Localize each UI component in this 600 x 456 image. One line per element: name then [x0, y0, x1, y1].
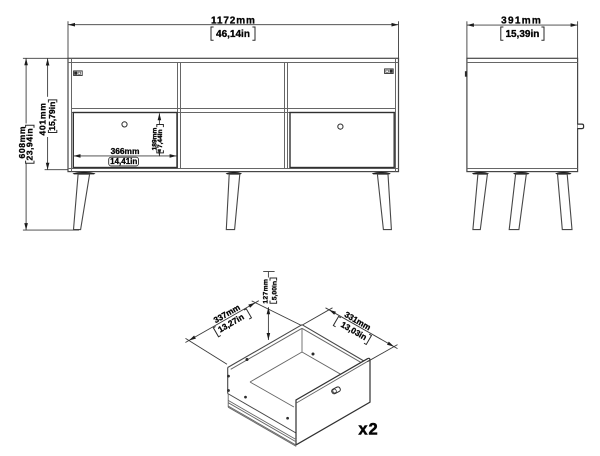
svg-text:14,41in: 14,41in [110, 157, 137, 166]
svg-text:5,00in: 5,00in [272, 281, 279, 300]
svg-text:7,44in: 7,44in [157, 129, 164, 148]
svg-text:46,14in: 46,14in [216, 29, 250, 40]
svg-text:401mm: 401mm [38, 102, 48, 135]
svg-text:23,94in: 23,94in [24, 128, 34, 161]
svg-text:1172mm: 1172mm [211, 15, 256, 26]
svg-text:127mm: 127mm [262, 279, 269, 304]
svg-text:366mm: 366mm [111, 146, 140, 156]
svg-text:15,79in: 15,79in [47, 102, 57, 131]
svg-text:15,39in: 15,39in [505, 29, 539, 40]
svg-text:391mm: 391mm [501, 15, 542, 26]
svg-text:x2: x2 [358, 421, 378, 439]
